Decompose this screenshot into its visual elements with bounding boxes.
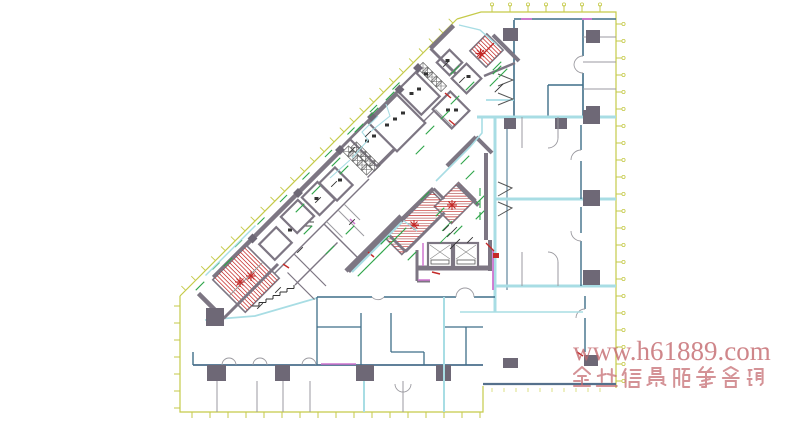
svg-text:www.h61889.com: www.h61889.com (573, 336, 771, 366)
